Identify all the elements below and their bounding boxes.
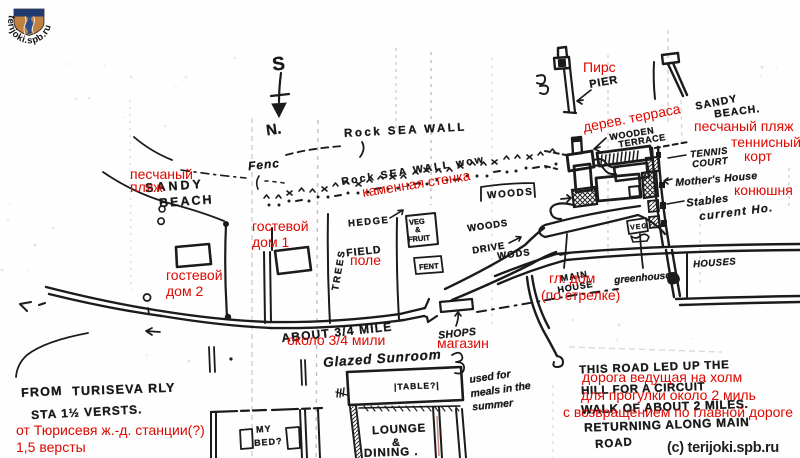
svg-text:корт: корт <box>744 148 773 164</box>
svg-text:для прогулки около 2 миль: для прогулки около 2 миль <box>581 387 756 403</box>
svg-text:1,5 версты: 1,5 версты <box>16 439 86 455</box>
svg-text:S: S <box>271 53 286 75</box>
svg-text:N.: N. <box>265 120 282 139</box>
svg-text:(по стрелке): (по стрелке) <box>541 287 620 303</box>
svg-text:с возвращением по главной доро: с возвращением по главной дороге <box>563 404 793 420</box>
svg-text:|TABLE?|: |TABLE?| <box>394 380 440 392</box>
svg-text:поле: поле <box>350 252 381 268</box>
svg-text:DINING .: DINING . <box>364 446 419 458</box>
svg-text:Пирс: Пирс <box>583 59 616 75</box>
svg-text:BED?: BED? <box>254 436 283 448</box>
svg-text:(c) terijoki.spb.ru: (c) terijoki.spb.ru <box>667 440 779 456</box>
svg-text:гостевой: гостевой <box>166 267 223 283</box>
svg-text:песчаный пляж: песчаный пляж <box>694 118 794 134</box>
svg-text:от Тюрисевя ж.-д. станции(?): от Тюрисевя ж.-д. станции(?) <box>16 422 205 438</box>
svg-text:гл. дом: гл. дом <box>549 270 595 286</box>
svg-text:около 3/4 мили: около 3/4 мили <box>287 332 385 348</box>
svg-text:гостевой: гостевой <box>252 218 309 234</box>
svg-text:магазин: магазин <box>437 335 489 351</box>
svg-text:конюшня: конюшня <box>734 182 793 198</box>
svg-text:пляж: пляж <box>130 179 163 195</box>
svg-text:дом 1: дом 1 <box>252 234 289 250</box>
svg-text:дорога ведущая на холм: дорога ведущая на холм <box>582 369 742 385</box>
svg-text:FROM: FROM <box>21 384 63 400</box>
svg-text:FENT: FENT <box>419 261 440 271</box>
svg-text:дом 2: дом 2 <box>166 283 203 299</box>
svg-text:MY: MY <box>256 424 272 435</box>
